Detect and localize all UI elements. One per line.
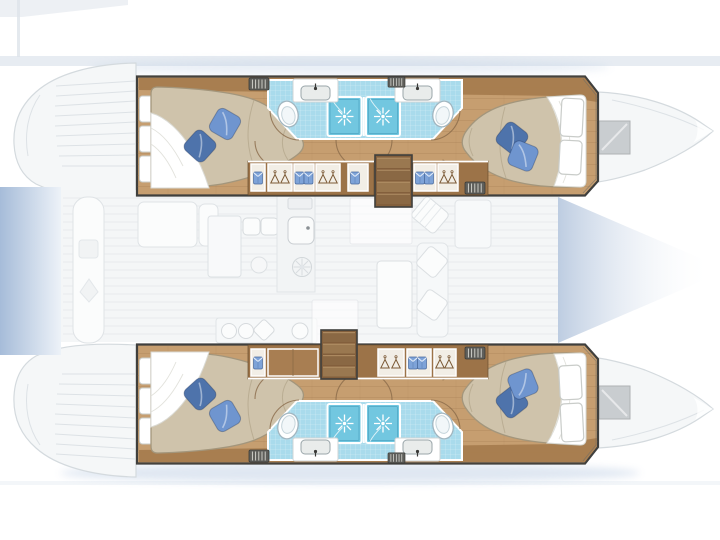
vent-grille — [249, 78, 269, 90]
vent-grille — [465, 347, 485, 359]
catamaran-floorplan: Catamaran interior layout plan: two hull… — [0, 0, 720, 540]
vent-grille — [388, 77, 405, 87]
saloon-table — [377, 261, 412, 328]
companionway-stairs — [321, 330, 357, 379]
companionway-stairs — [375, 155, 412, 207]
davit-bar — [17, 0, 20, 57]
vent-grille — [465, 182, 485, 194]
aft-platform — [0, 187, 61, 355]
stove-burner-icon — [293, 258, 312, 277]
catamaran-floorplan-page: Catamaran interior layout plan: two hull… — [0, 0, 720, 540]
washbasin — [293, 79, 338, 102]
cockpit-table — [138, 202, 197, 247]
bottom-hull-shadow — [60, 463, 640, 483]
shower-stall — [366, 97, 400, 136]
forepeak-shading — [558, 197, 713, 343]
galley-sink — [288, 217, 314, 244]
transom-steps — [14, 63, 136, 196]
top-hull-shadow — [90, 59, 610, 75]
shower-stall — [328, 97, 362, 136]
bow-deck — [598, 92, 713, 182]
